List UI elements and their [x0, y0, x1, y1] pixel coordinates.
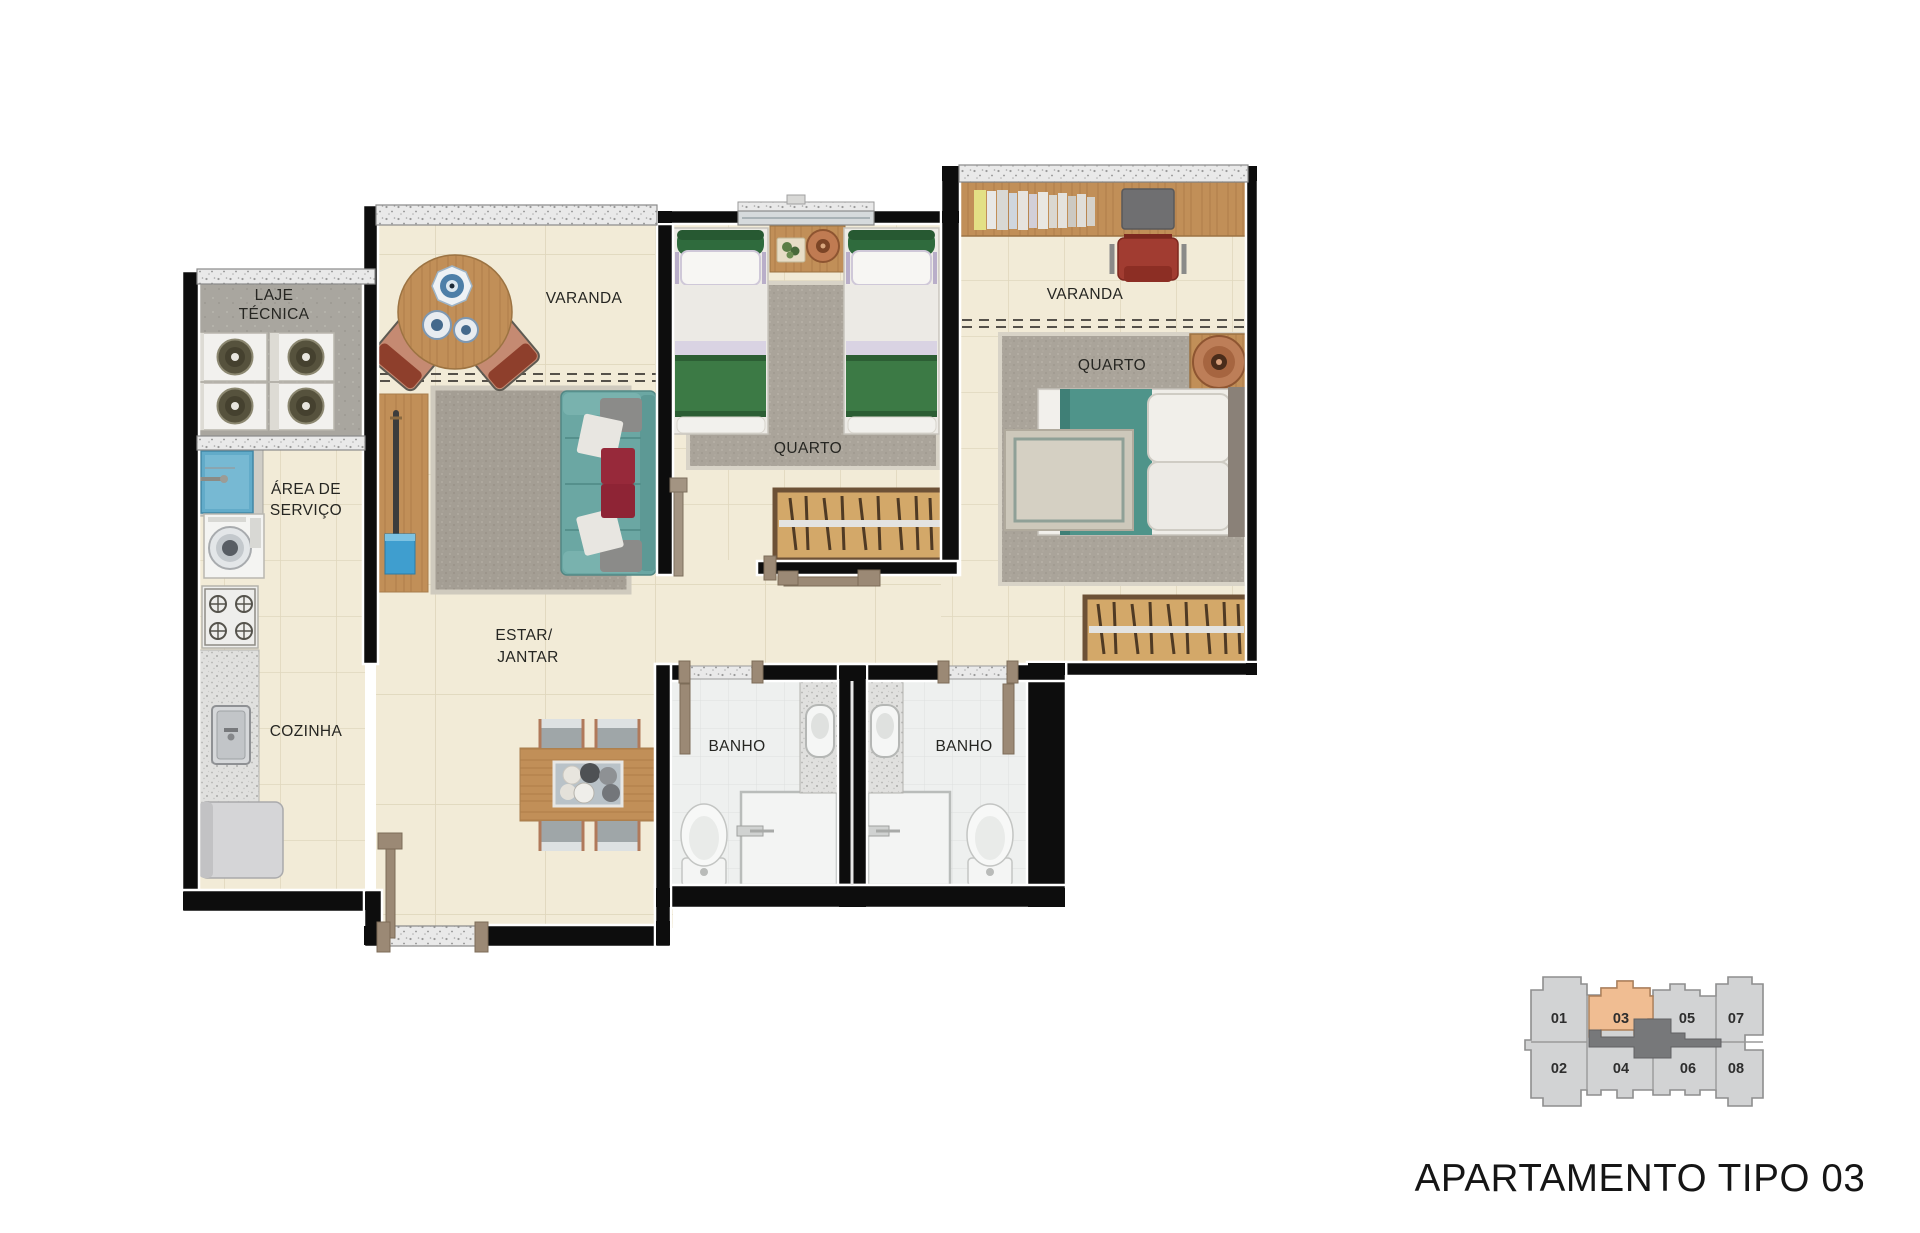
svg-text:LAJE: LAJE — [255, 287, 294, 304]
svg-text:02: 02 — [1551, 1061, 1567, 1077]
svg-text:ESTAR/: ESTAR/ — [495, 627, 553, 644]
svg-text:07: 07 — [1728, 1011, 1744, 1027]
svg-text:03: 03 — [1613, 1011, 1629, 1027]
svg-text:QUARTO: QUARTO — [774, 440, 842, 457]
svg-text:01: 01 — [1551, 1011, 1567, 1027]
svg-text:08: 08 — [1728, 1061, 1744, 1077]
svg-text:BANHO: BANHO — [935, 738, 992, 755]
svg-text:BANHO: BANHO — [708, 738, 765, 755]
svg-text:06: 06 — [1680, 1061, 1696, 1077]
svg-text:VARANDA: VARANDA — [546, 290, 623, 307]
svg-text:05: 05 — [1679, 1011, 1695, 1027]
svg-text:COZINHA: COZINHA — [270, 723, 343, 740]
svg-text:04: 04 — [1613, 1061, 1629, 1077]
svg-text:VARANDA: VARANDA — [1047, 286, 1124, 303]
svg-text:ÁREA DE: ÁREA DE — [271, 481, 341, 498]
svg-text:SERVIÇO: SERVIÇO — [270, 502, 342, 519]
svg-text:JANTAR: JANTAR — [497, 649, 559, 666]
svg-text:APARTAMENTO TIPO 03: APARTAMENTO TIPO 03 — [1415, 1157, 1866, 1200]
svg-text:QUARTO: QUARTO — [1078, 357, 1146, 374]
svg-text:TÉCNICA: TÉCNICA — [239, 306, 310, 323]
